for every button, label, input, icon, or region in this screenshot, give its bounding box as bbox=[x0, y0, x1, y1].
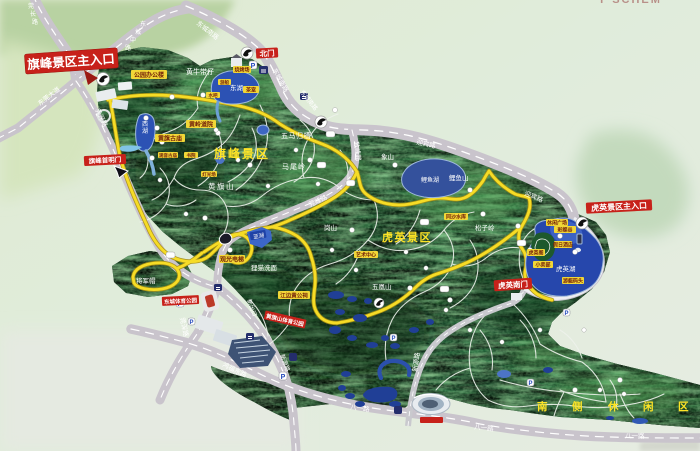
svg-text:灯光场: 灯光场 bbox=[202, 171, 216, 178]
svg-text:茶室: 茶室 bbox=[245, 87, 256, 94]
svg-text:鲤鱼山: 鲤鱼山 bbox=[449, 173, 469, 182]
svg-text:Y SCHEM: Y SCHEM bbox=[598, 0, 662, 6]
svg-text:将军帽: 将军帽 bbox=[136, 276, 156, 285]
svg-text:江边黄公祠: 江边黄公祠 bbox=[280, 292, 308, 300]
svg-text:黄牛带仔: 黄牛带仔 bbox=[186, 67, 214, 76]
svg-text:五凰山: 五凰山 bbox=[372, 282, 392, 291]
svg-text:P: P bbox=[251, 63, 256, 70]
svg-text:P: P bbox=[281, 374, 286, 381]
svg-text:闲: 闲 bbox=[643, 400, 654, 413]
svg-text:烧烤场: 烧烤场 bbox=[234, 67, 249, 74]
svg-text:休: 休 bbox=[607, 400, 619, 413]
svg-text:象山: 象山 bbox=[381, 152, 394, 161]
svg-text:P: P bbox=[189, 320, 193, 326]
svg-text:松子岭: 松子岭 bbox=[475, 223, 495, 232]
svg-text:书院: 书院 bbox=[187, 152, 196, 159]
svg-text:P: P bbox=[564, 311, 568, 317]
svg-text:鲤鱼湖: 鲤鱼湖 bbox=[421, 176, 439, 184]
svg-text:假日酒店: 假日酒店 bbox=[553, 242, 573, 249]
svg-text:五马归槽: 五马归槽 bbox=[281, 131, 311, 140]
svg-text:狸猫洗面: 狸猫洗面 bbox=[251, 263, 278, 272]
svg-text:八一路: 八一路 bbox=[625, 431, 645, 440]
svg-text:小卖部: 小卖部 bbox=[535, 262, 550, 269]
svg-text:虎英阁: 虎英阁 bbox=[528, 250, 543, 257]
svg-text:岗山: 岗山 bbox=[324, 223, 337, 232]
svg-text:游艇码头: 游艇码头 bbox=[563, 278, 583, 285]
svg-text:虎英南门: 虎英南门 bbox=[498, 278, 529, 290]
svg-text:虎英景区: 虎英景区 bbox=[382, 230, 432, 244]
svg-text:侧: 侧 bbox=[572, 400, 583, 413]
svg-text:公园办公楼: 公园办公楼 bbox=[134, 71, 164, 79]
svg-text:休闲广场: 休闲广场 bbox=[546, 220, 567, 227]
svg-text:虎英湖: 虎英湖 bbox=[556, 264, 576, 273]
svg-text:水吧: 水吧 bbox=[209, 92, 218, 99]
svg-text:黄岭道院: 黄岭道院 bbox=[189, 121, 213, 129]
svg-text:北门: 北门 bbox=[259, 48, 275, 59]
svg-text:同沙水库: 同沙水库 bbox=[446, 214, 466, 221]
svg-text:马尾岭: 马尾岭 bbox=[282, 162, 306, 171]
svg-text:东湖: 东湖 bbox=[230, 83, 244, 92]
svg-text:黄旗山: 黄旗山 bbox=[208, 181, 235, 191]
svg-text:南: 南 bbox=[537, 400, 548, 413]
svg-text:区: 区 bbox=[678, 401, 689, 413]
svg-text:彩蝶谷: 彩蝶谷 bbox=[556, 227, 573, 234]
svg-text:黄旗古庙: 黄旗古庙 bbox=[158, 135, 182, 143]
svg-text:观光电梯: 观光电梯 bbox=[220, 256, 244, 264]
svg-text:旗峰景区: 旗峰景区 bbox=[214, 146, 270, 161]
svg-text:观音古庙: 观音古庙 bbox=[159, 152, 177, 159]
svg-text:艺术中心: 艺术中心 bbox=[356, 252, 376, 259]
svg-text:P: P bbox=[391, 336, 395, 342]
svg-text:P: P bbox=[528, 381, 532, 387]
svg-text:游船: 游船 bbox=[220, 79, 229, 86]
